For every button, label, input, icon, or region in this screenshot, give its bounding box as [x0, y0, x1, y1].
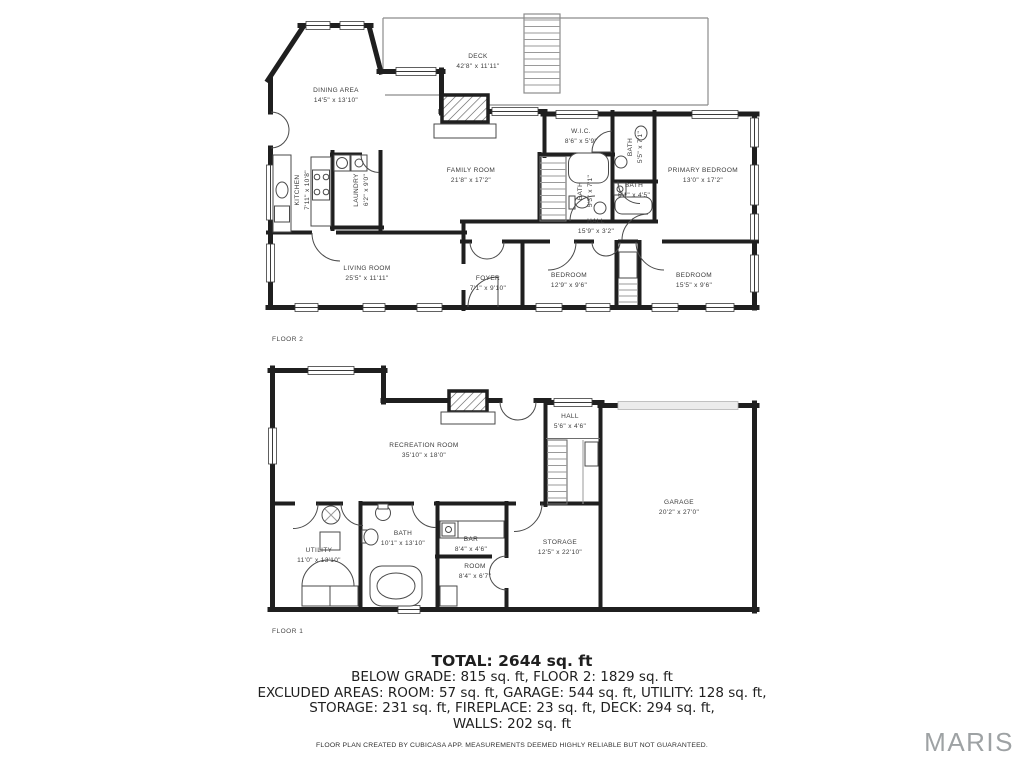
floor2-fireplace [434, 95, 496, 138]
floor2-plan [267, 14, 759, 312]
floor1-stairs [546, 439, 600, 505]
room-name: FAMILY ROOM [447, 166, 495, 176]
room-label-hall-floor1: HALL 5'6" x 4'6" [554, 412, 586, 432]
floor1-fireplace [441, 391, 495, 424]
room-label-bedroom-2: BEDROOM 15'5" x 9'6" [676, 271, 712, 291]
room-dims: 15'5" x 9'6" [676, 281, 712, 291]
room-label-bath-small: BATH 6'1" x 4'5" [618, 181, 650, 201]
room-dims: 6'1" x 4'5" [618, 191, 650, 201]
room-name: BATH [618, 181, 650, 191]
room-name: LAUNDRY [352, 173, 362, 206]
bath-fixtures-floor1 [362, 504, 422, 606]
room-dims: 5'6" x 4'6" [554, 422, 586, 432]
room-dims: 25'5" x 11'11" [343, 274, 390, 284]
room-label-bar: BAR 8'4" x 4'6" [455, 535, 487, 555]
room-dims: 35'10" x 18'0" [389, 451, 458, 461]
room-dims: 8'4" x 6'7" [459, 572, 491, 582]
room-dims: 11'0" x 13'10" [297, 556, 341, 566]
room-name: GARAGE [659, 498, 699, 508]
floor1-caption: FLOOR 1 [272, 628, 303, 635]
summary-excluded-areas: EXCLUDED AREAS: ROOM: 57 sq. ft, GARAGE:… [0, 686, 1024, 702]
room-name: BATH [576, 175, 586, 207]
deck-stairs-outline [524, 14, 560, 93]
room-name: FOYER [470, 274, 506, 284]
room-name: LIVING ROOM [343, 264, 390, 274]
room-label-garage: GARAGE 20'2" x 27'0" [659, 498, 699, 518]
room-dims: 7'1" x 9'10" [470, 284, 506, 294]
room-dims: 7'11" x 10'8" [303, 170, 313, 210]
room-dims: 12'5" x 22'10" [538, 548, 582, 558]
room-name: KITCHEN [293, 170, 303, 210]
room-label-bath-hall: BATH 5'3" x 7'1" [576, 175, 596, 207]
room-label-room: ROOM 8'4" x 6'7" [459, 562, 491, 582]
room-dims: 14'5" x 13'10" [313, 96, 359, 106]
room-label-foyer: FOYER 7'1" x 9'10" [470, 274, 506, 294]
summary-walls: WALLS: 202 sq. ft [0, 717, 1024, 733]
room-dims: 8'4" x 4'6" [455, 545, 487, 555]
room-name: W.I.C. [565, 127, 597, 137]
room-label-recreation-room: RECREATION ROOM 35'10" x 18'0" [389, 441, 458, 461]
summary-total: TOTAL: 2644 sq. ft [0, 653, 1024, 670]
room-cabinet [440, 586, 457, 606]
room-dims: 5'5" x 7'1" [636, 131, 646, 163]
maris-watermark: MARIS [924, 727, 1014, 758]
room-name: BEDROOM [676, 271, 712, 281]
area-summary: TOTAL: 2644 sq. ft BELOW GRADE: 815 sq. … [0, 653, 1024, 732]
floor1-plan [269, 367, 758, 614]
room-label-utility: UTILITY 11'0" x 13'10" [297, 546, 341, 566]
room-name: UTILITY [297, 546, 341, 556]
floor1-windows [269, 367, 739, 614]
room-dims: 12'9" x 9'6" [551, 281, 587, 291]
summary-storage-fireplace-deck: STORAGE: 231 sq. ft, FIREPLACE: 23 sq. f… [0, 701, 1024, 717]
floor2-stairs [540, 157, 566, 222]
deck-stairs-treads [524, 20, 560, 85]
floor2-caption: FLOOR 2 [272, 336, 303, 343]
room-label-laundry: LAUNDRY 6'2" x 9'0" [352, 173, 372, 206]
room-name: STORAGE [538, 538, 582, 548]
garage-door [618, 402, 738, 410]
room-dims: 21'8" x 17'2" [447, 176, 495, 186]
room-label-kitchen: KITCHEN 7'11" x 10'8" [293, 170, 313, 210]
room-dims: 20'2" x 27'0" [659, 508, 699, 518]
room-label-family-room: FAMILY ROOM 21'8" x 17'2" [447, 166, 495, 186]
room-label-storage: STORAGE 12'5" x 22'10" [538, 538, 582, 558]
room-name: DECK [456, 52, 499, 62]
room-label-bath-primary: BATH 5'5" x 7'1" [626, 131, 646, 163]
room-name: BATH [626, 131, 636, 163]
room-name: RECREATION ROOM [389, 441, 458, 451]
room-label-living-room: LIVING ROOM 25'5" x 11'11" [343, 264, 390, 284]
room-dims: 13'0" x 17'2" [668, 176, 738, 186]
room-name: HALL [578, 217, 614, 227]
room-name: BEDROOM [551, 271, 587, 281]
room-name: HALL [554, 412, 586, 422]
room-name: PRIMARY BEDROOM [668, 166, 738, 176]
summary-below-grade: BELOW GRADE: 815 sq. ft, FLOOR 2: 1829 s… [0, 670, 1024, 686]
room-name: BAR [455, 535, 487, 545]
room-name: BATH [381, 529, 425, 539]
floorplan-page: DECK 42'8" x 11'11" DINING AREA 14'5" x … [0, 0, 1024, 768]
laundry-fixtures [334, 155, 367, 171]
room-label-bath-floor1: BATH 10'1" x 13'10" [381, 529, 425, 549]
room-label-primary-bedroom: PRIMARY BEDROOM 13'0" x 17'2" [668, 166, 738, 186]
deck-railing [383, 14, 708, 105]
room-dims: 5'3" x 7'1" [586, 175, 596, 207]
room-dims: 6'2" x 9'0" [362, 173, 372, 206]
room-name: ROOM [459, 562, 491, 572]
floor2-closet-column [619, 252, 637, 302]
floor1-interior-walls [273, 401, 601, 610]
room-label-bedroom-1: BEDROOM 12'9" x 9'6" [551, 271, 587, 291]
disclaimer-text: FLOOR PLAN CREATED BY CUBICASA APP. MEAS… [0, 742, 1024, 749]
room-label-dining-area: DINING AREA 14'5" x 13'10" [313, 86, 359, 106]
room-dims: 10'1" x 13'10" [381, 539, 425, 549]
room-dims: 8'6" x 5'9" [565, 137, 597, 147]
room-label-hall-floor2: HALL 15'9" x 3'2" [578, 217, 614, 237]
room-label-wic: W.I.C. 8'6" x 5'9" [565, 127, 597, 147]
room-dims: 15'9" x 3'2" [578, 227, 614, 237]
room-label-deck: DECK 42'8" x 11'11" [456, 52, 499, 72]
room-name: DINING AREA [313, 86, 359, 96]
room-dims: 42'8" x 11'11" [456, 62, 499, 72]
